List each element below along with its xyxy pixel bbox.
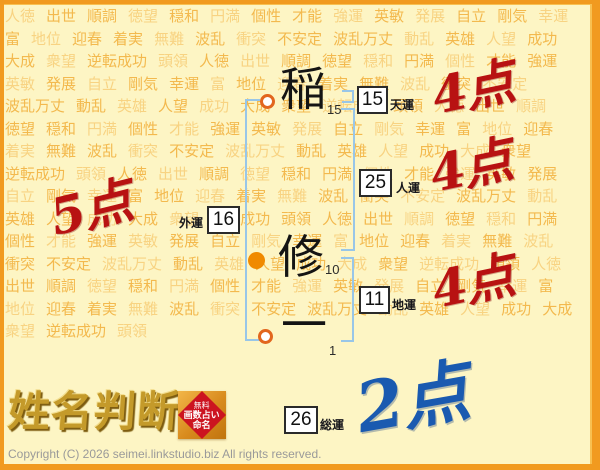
background-word: 波乱 bbox=[87, 141, 117, 164]
seimei-handan-result-panel: 人徳出世順調徳望穏和円満個性才能強運英敏発展自立剛気幸運富地位迎春着実無難波乱衝… bbox=[0, 0, 600, 470]
background-word: 英雄 bbox=[445, 29, 475, 52]
background-word: 人徳 bbox=[199, 51, 229, 74]
background-word: 成功 bbox=[199, 96, 229, 119]
background-word: 動乱 bbox=[296, 141, 326, 164]
background-word: 穏和 bbox=[46, 119, 76, 142]
background-word: 無難 bbox=[277, 186, 307, 209]
background-word: 頭領 bbox=[158, 51, 188, 74]
background-word: 波乱 bbox=[195, 29, 225, 52]
background-word: 地位 bbox=[236, 74, 266, 97]
background-word: 着実 bbox=[5, 141, 35, 164]
background-word: 迎春 bbox=[523, 119, 553, 142]
surname-stroke-count: 15 bbox=[327, 102, 341, 117]
outer-luck-value-box: 16 bbox=[207, 206, 240, 234]
background-word: 順調 bbox=[87, 6, 117, 29]
background-word: 無難 bbox=[154, 29, 184, 52]
background-word: 大成 bbox=[542, 299, 572, 322]
earth-luck-label: 地運 bbox=[392, 296, 416, 313]
background-word: 個性 bbox=[210, 276, 240, 299]
given2-char: 一 bbox=[281, 302, 327, 348]
background-word: 才能 bbox=[292, 6, 322, 29]
given1-char: 修 bbox=[278, 234, 324, 280]
background-word: 順調 bbox=[516, 96, 546, 119]
heaven-luck-bracket bbox=[342, 90, 354, 103]
background-word: 英敏 bbox=[5, 74, 35, 97]
seal-line-meimei: 命名 bbox=[184, 420, 220, 430]
background-word: 富 bbox=[538, 276, 553, 299]
background-word: 地位 bbox=[154, 186, 184, 209]
background-word: 剛気 bbox=[374, 119, 404, 142]
background-word: 発展 bbox=[169, 231, 199, 254]
background-word: 円満 bbox=[87, 119, 117, 142]
background-word: 衝突 bbox=[5, 254, 35, 277]
surname-char: 稲 bbox=[280, 66, 326, 112]
heaven-luck-score: 4点 bbox=[428, 56, 517, 122]
person-luck-label: 人運 bbox=[396, 179, 420, 196]
total-luck-value-box: 26 bbox=[284, 406, 318, 434]
given1-stroke-count: 10 bbox=[325, 262, 339, 277]
background-word: 英雄 bbox=[117, 96, 147, 119]
site-logo[interactable]: 姓名判断 bbox=[6, 390, 181, 434]
background-word: 自立 bbox=[210, 231, 240, 254]
seal-line-kakusu: 画数占い bbox=[184, 410, 220, 420]
background-word: 不安定 bbox=[277, 29, 322, 52]
background-word: 頭領 bbox=[117, 321, 147, 344]
background-word: 出世 bbox=[158, 164, 188, 187]
background-word: 地位 bbox=[359, 231, 389, 254]
background-word: 逆転成功 bbox=[46, 321, 106, 344]
background-word: 着実 bbox=[87, 299, 117, 322]
background-word: 着実 bbox=[441, 231, 471, 254]
background-word: 穏和 bbox=[281, 164, 311, 187]
background-word: 順調 bbox=[404, 209, 434, 232]
earth-luck-value-box: 11 bbox=[359, 286, 390, 314]
background-word: 順調 bbox=[46, 276, 76, 299]
background-word: 英敏 bbox=[374, 6, 404, 29]
background-word: 動乱 bbox=[527, 186, 557, 209]
given2-stroke-count: 1 bbox=[329, 343, 336, 358]
background-word: 出世 bbox=[363, 209, 393, 232]
background-word: 強運 bbox=[527, 51, 557, 74]
background-word: 円満 bbox=[527, 209, 557, 232]
outer-luck-label: 外運 bbox=[179, 214, 203, 231]
background-word: 波乱 bbox=[523, 231, 553, 254]
background-word: 英雄 bbox=[214, 254, 244, 277]
background-word: 富 bbox=[5, 29, 20, 52]
background-word: 徳望 bbox=[87, 276, 117, 299]
background-word: 衝突 bbox=[210, 299, 240, 322]
total-luck-score: 2点 bbox=[351, 357, 472, 443]
person-luck-bracket bbox=[341, 108, 355, 251]
background-word: 個性 bbox=[5, 231, 35, 254]
background-word: 穏和 bbox=[363, 51, 393, 74]
background-word: 動乱 bbox=[173, 254, 203, 277]
surname-marker-circle bbox=[260, 94, 275, 109]
background-word: 発展 bbox=[292, 119, 322, 142]
background-word: 不安定 bbox=[169, 141, 214, 164]
background-word: 剛気 bbox=[128, 74, 158, 97]
background-word: 衆望 bbox=[46, 51, 76, 74]
background-word: 円満 bbox=[210, 6, 240, 29]
background-word: 出世 bbox=[240, 51, 270, 74]
background-word: 徳望 bbox=[445, 209, 475, 232]
background-word: 人徳 bbox=[531, 254, 561, 277]
background-word: 発展 bbox=[415, 6, 445, 29]
background-word: 自立 bbox=[5, 186, 35, 209]
background-word: 人望 bbox=[378, 141, 408, 164]
copyright-text: Copyright (C) 2026 seimei.linkstudio.biz… bbox=[8, 447, 321, 461]
background-word: 地位 bbox=[5, 299, 35, 322]
background-word: 徳望 bbox=[322, 51, 352, 74]
background-word: 人望 bbox=[486, 29, 516, 52]
background-word: 穏和 bbox=[486, 209, 516, 232]
background-word: 着実 bbox=[113, 29, 143, 52]
given2-marker-circle bbox=[258, 329, 273, 344]
background-word: 出世 bbox=[46, 6, 76, 29]
background-word: 円満 bbox=[169, 276, 199, 299]
earth-luck-score: 4点 bbox=[428, 250, 517, 316]
background-word: 英敏 bbox=[128, 231, 158, 254]
background-word: 成功 bbox=[527, 29, 557, 52]
given1-marker-dot bbox=[248, 252, 265, 269]
background-word: 逆転成功 bbox=[87, 51, 147, 74]
background-word: 波乱万丈 bbox=[333, 29, 393, 52]
background-word: 自立 bbox=[87, 74, 117, 97]
background-word: 逆転成功 bbox=[5, 164, 65, 187]
background-word: 波乱万丈 bbox=[102, 254, 162, 277]
background-word: 幸運 bbox=[538, 6, 568, 29]
person-luck-score: 4点 bbox=[426, 134, 515, 200]
background-word: 衝突 bbox=[236, 29, 266, 52]
background-word: 不安定 bbox=[46, 254, 91, 277]
background-word: 衆望 bbox=[378, 254, 408, 277]
background-word: 迎春 bbox=[72, 29, 102, 52]
background-word: 徳望 bbox=[5, 119, 35, 142]
seal-diamond: 無料 画数占い 命名 bbox=[178, 391, 226, 439]
background-word: 迎春 bbox=[46, 299, 76, 322]
background-word: 穏和 bbox=[169, 6, 199, 29]
background-word: 衝突 bbox=[128, 141, 158, 164]
background-word: 順調 bbox=[199, 164, 229, 187]
total-luck-label: 総運 bbox=[320, 416, 344, 433]
background-word: 大成 bbox=[5, 51, 35, 74]
person-luck-value-box: 25 bbox=[359, 169, 392, 197]
outer-luck-bracket bbox=[245, 99, 260, 341]
background-word: 徳望 bbox=[128, 6, 158, 29]
earth-luck-bracket bbox=[341, 257, 354, 342]
background-word: 波乱 bbox=[169, 299, 199, 322]
background-word: 発展 bbox=[46, 74, 76, 97]
background-word: 無難 bbox=[46, 141, 76, 164]
background-word: 富 bbox=[210, 74, 225, 97]
background-word: 幸運 bbox=[169, 74, 199, 97]
background-word: 人徳 bbox=[5, 6, 35, 29]
seal-line-free: 無料 bbox=[184, 401, 220, 410]
background-word: 出世 bbox=[5, 276, 35, 299]
background-word: 地位 bbox=[31, 29, 61, 52]
background-word: 個性 bbox=[128, 119, 158, 142]
heaven-luck-label: 天運 bbox=[390, 96, 414, 113]
background-word: 人望 bbox=[158, 96, 188, 119]
background-word: 強運 bbox=[210, 119, 240, 142]
background-word: 頭領 bbox=[281, 209, 311, 232]
background-word: 才能 bbox=[169, 119, 199, 142]
background-word: 無難 bbox=[128, 299, 158, 322]
background-word: 自立 bbox=[456, 6, 486, 29]
background-word: 強運 bbox=[333, 6, 363, 29]
background-word: 個性 bbox=[251, 6, 281, 29]
background-word: 動乱 bbox=[76, 96, 106, 119]
background-word: 動乱 bbox=[404, 29, 434, 52]
free-naming-seal-badge[interactable]: 無料 画数占い 命名 bbox=[178, 391, 226, 439]
background-word: 穏和 bbox=[128, 276, 158, 299]
background-word: 剛気 bbox=[497, 6, 527, 29]
background-word: 英雄 bbox=[5, 209, 35, 232]
heaven-luck-value-box: 15 bbox=[357, 86, 388, 114]
background-word: 波乱 bbox=[400, 74, 430, 97]
background-word: 発展 bbox=[527, 164, 557, 187]
background-word: 波乱万丈 bbox=[5, 96, 65, 119]
seal-text: 無料 画数占い 命名 bbox=[184, 401, 220, 430]
background-word: 衆望 bbox=[5, 321, 35, 344]
background-word: 迎春 bbox=[400, 231, 430, 254]
